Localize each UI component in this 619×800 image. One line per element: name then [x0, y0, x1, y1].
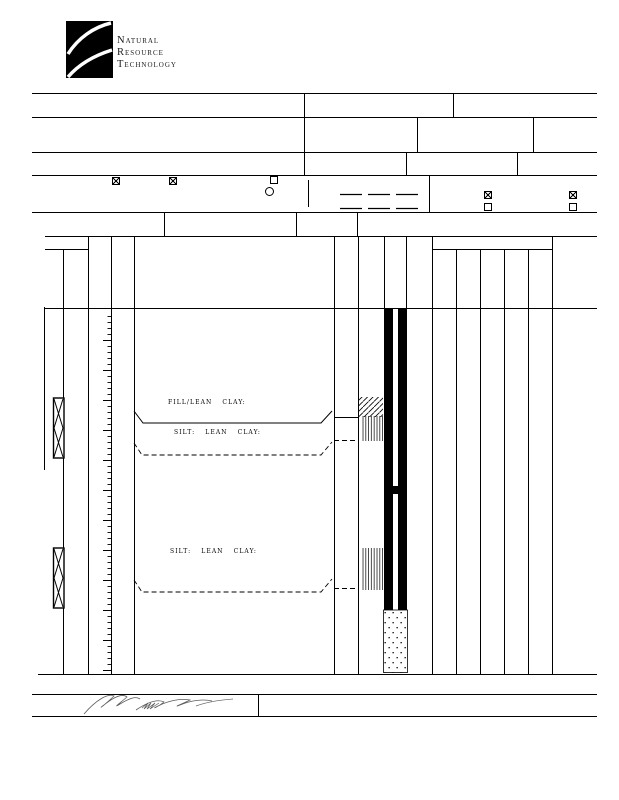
header-checkbox-6[interactable] [569, 191, 577, 199]
layer-description-2: SILT: LEAN CLAY: [174, 429, 261, 436]
header-checkbox-4[interactable] [484, 191, 492, 199]
reviewer-signature [84, 695, 233, 714]
boundary-solid [134, 411, 332, 423]
header-checkbox-7[interactable] [569, 203, 577, 211]
header-radio-circle[interactable] [265, 187, 274, 196]
monitoring-well-symbols-left [54, 398, 65, 608]
header-checkbox-5[interactable] [484, 203, 492, 211]
header-checkbox-2[interactable] [169, 177, 177, 185]
well-casing-bars [384, 309, 407, 610]
logo-company-name: Natural Resource Technology [117, 35, 177, 71]
layer-description-3: SILT: LEAN CLAY: [170, 548, 257, 555]
form-and-log-line-art [0, 0, 619, 800]
boundary-dashed-1 [134, 442, 332, 455]
water-level-marker [392, 486, 401, 494]
header-checkbox-1[interactable] [112, 177, 120, 185]
legend-water-level-dashes [340, 195, 423, 209]
header-checkbox-3[interactable] [270, 176, 278, 184]
scanned-boring-log-page: Natural Resource Technology FILL/LEAN CL… [0, 0, 619, 800]
well-screen-sandpack [384, 610, 408, 673]
well-annulus-hatching [359, 397, 383, 590]
layer-description-1: FILL/LEAN CLAY: [168, 399, 246, 406]
logo-company-name-line-1: Natural [117, 35, 177, 47]
boundary-dashed-2 [134, 579, 332, 592]
logo-company-name-line-3: Technology [117, 59, 177, 71]
header-grid-lines [32, 93, 597, 237]
log-table-grid [38, 236, 597, 675]
depth-scale [103, 314, 112, 672]
nrt-logo-mark [66, 21, 113, 78]
stratum-boundaries [134, 411, 359, 592]
logo-company-name-line-2: Resource [117, 47, 177, 59]
